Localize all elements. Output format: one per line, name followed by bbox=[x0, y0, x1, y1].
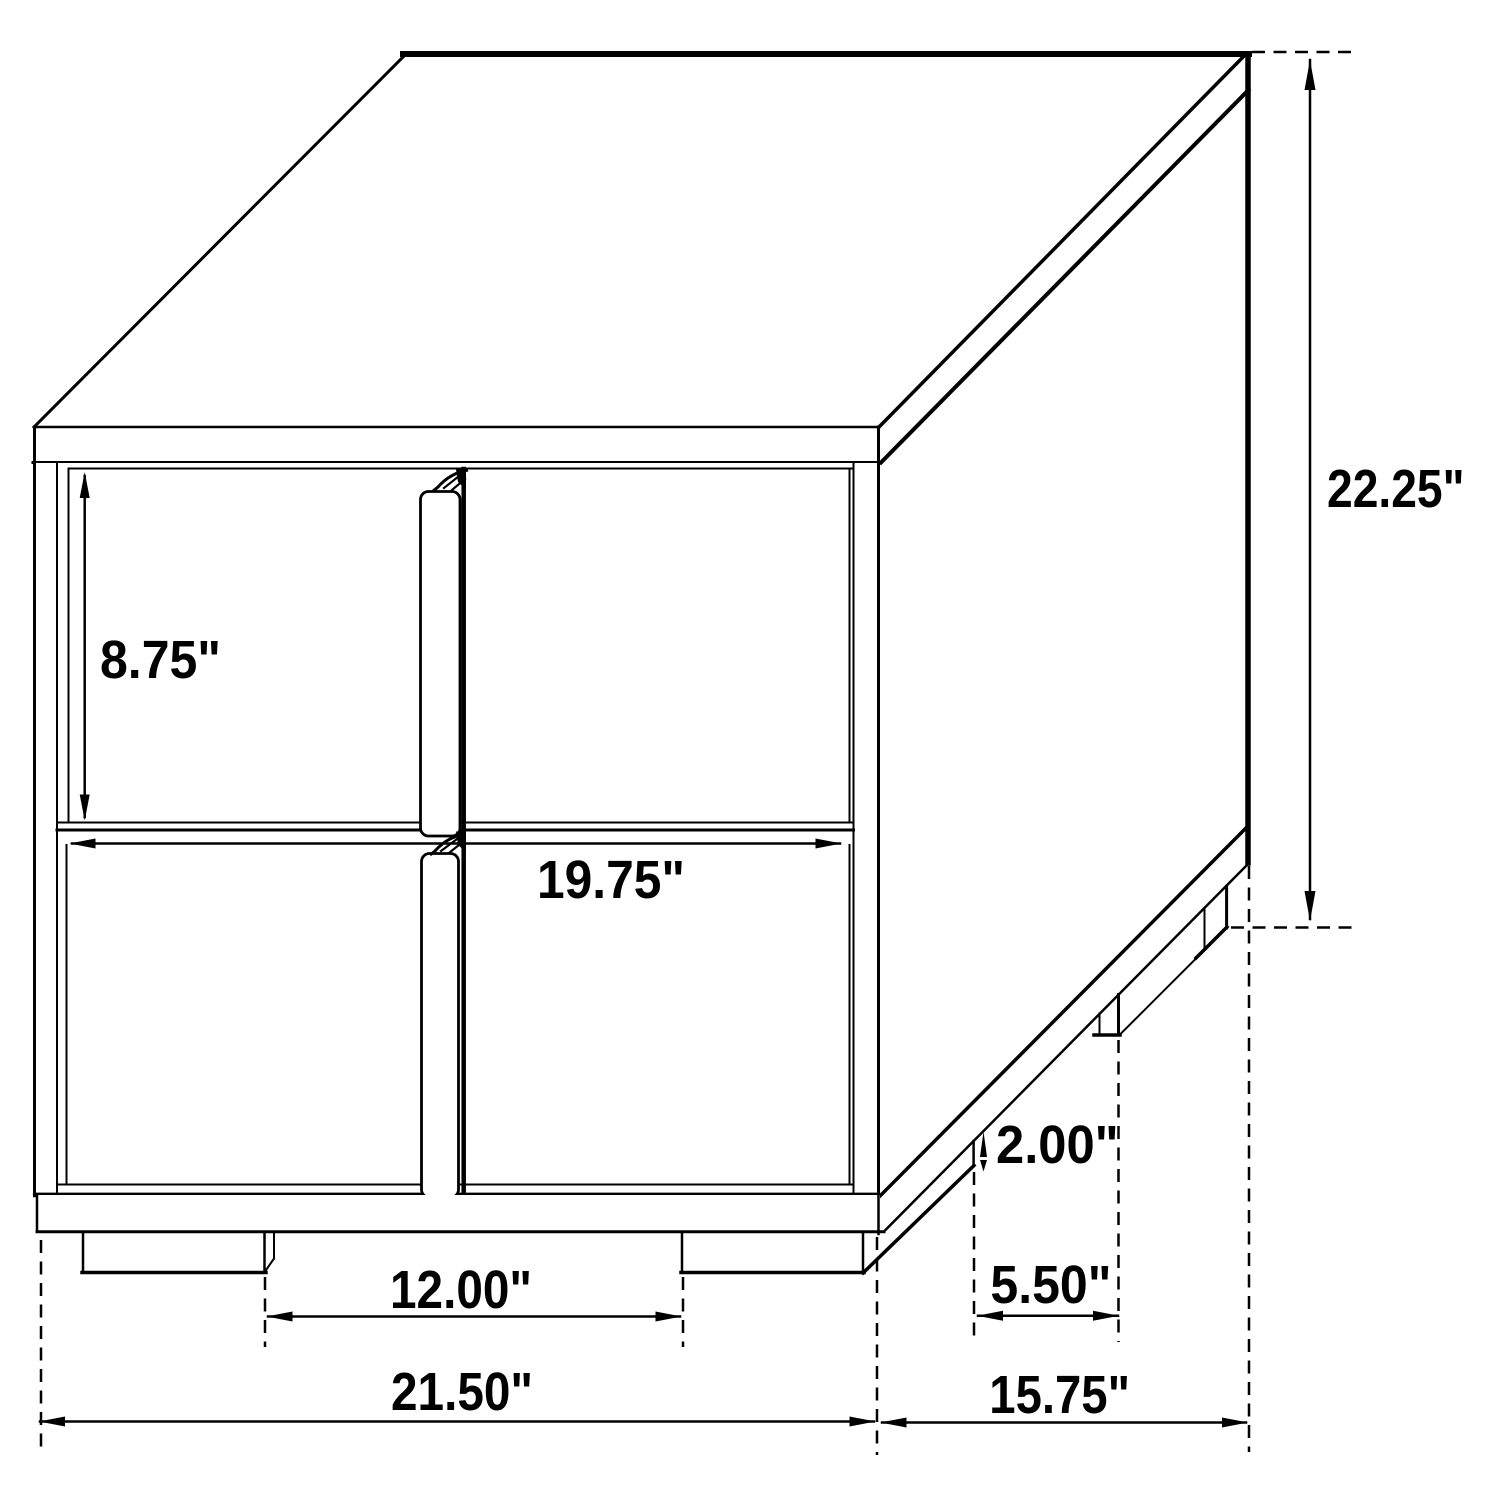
svg-text:15.75": 15.75" bbox=[989, 1365, 1130, 1425]
svg-text:19.75": 19.75" bbox=[537, 850, 685, 910]
svg-text:5.50": 5.50" bbox=[990, 1255, 1111, 1315]
svg-text:21.50": 21.50" bbox=[391, 1362, 533, 1422]
svg-text:22.25": 22.25" bbox=[1327, 459, 1465, 519]
svg-text:8.75": 8.75" bbox=[100, 630, 221, 690]
svg-text:12.00": 12.00" bbox=[390, 1260, 532, 1320]
svg-text:2.00": 2.00" bbox=[996, 1115, 1119, 1175]
